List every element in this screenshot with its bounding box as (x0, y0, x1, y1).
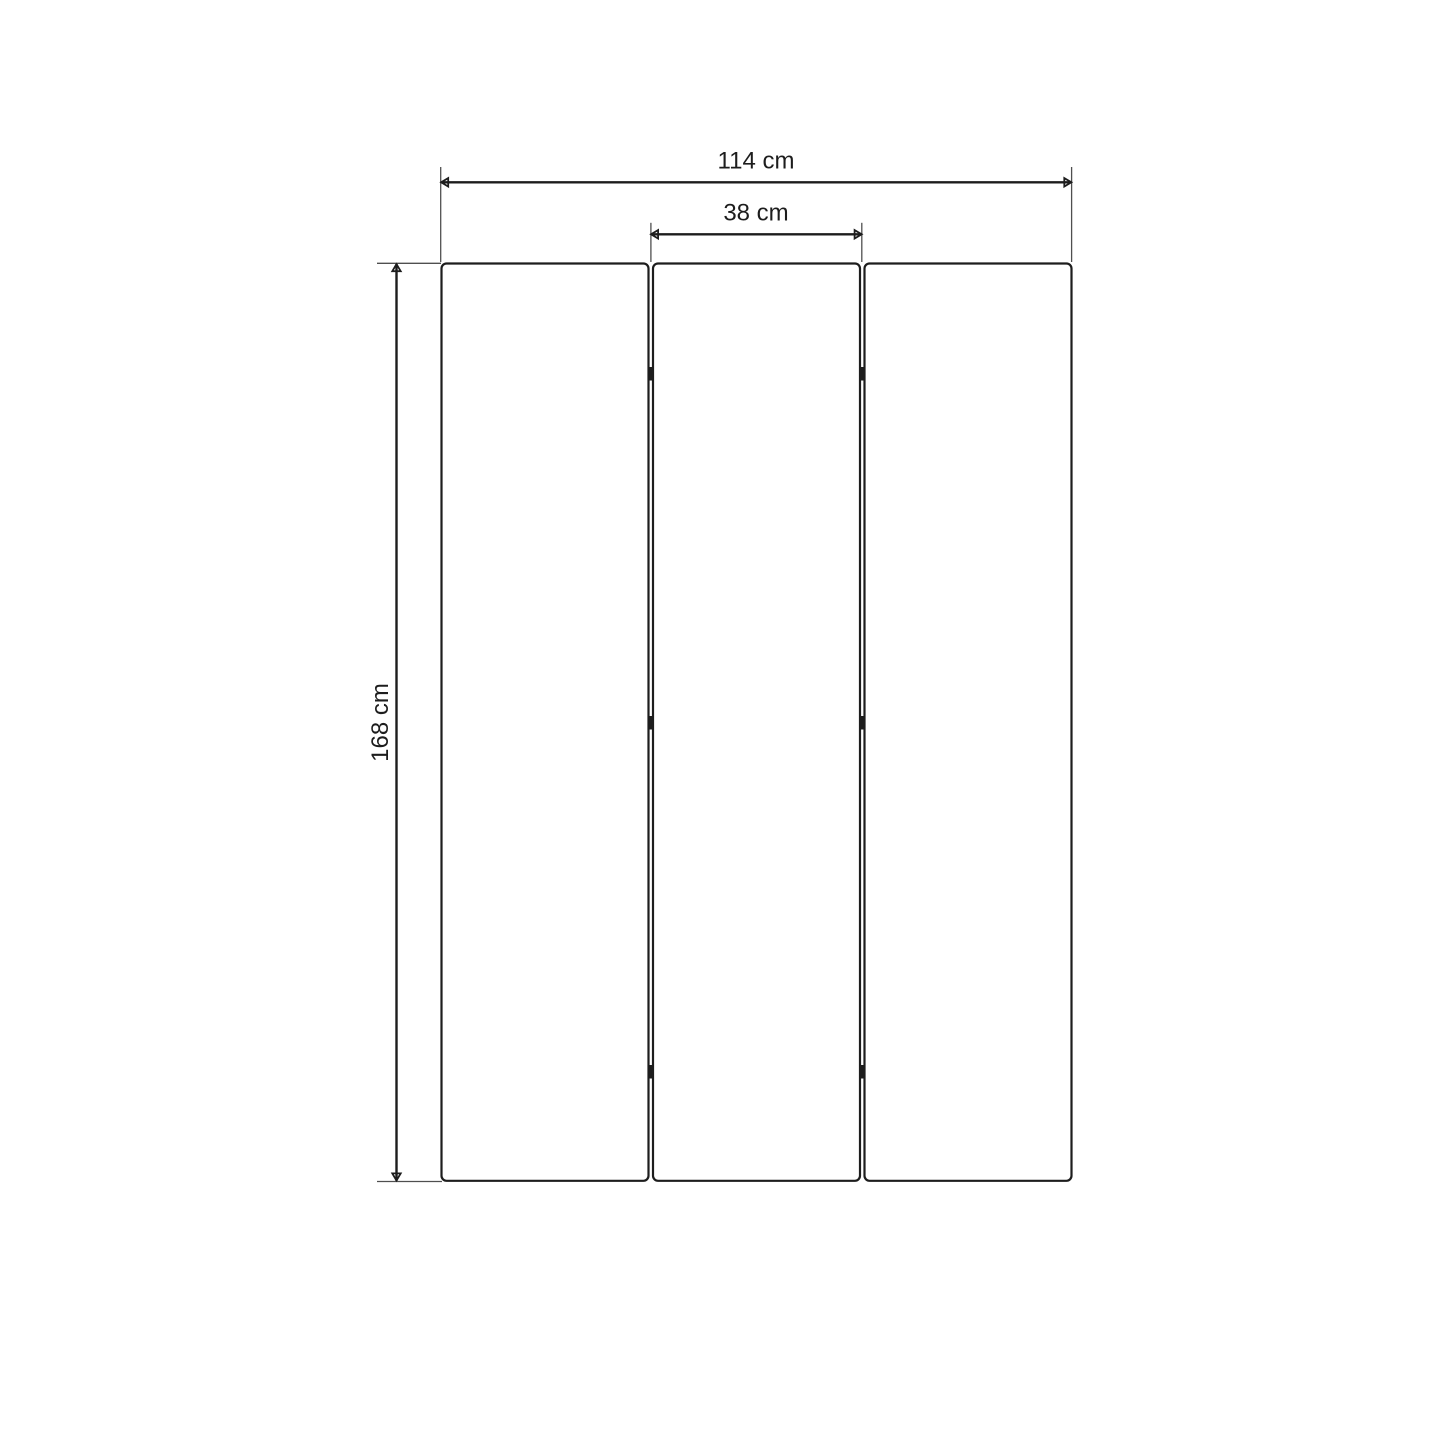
svg-text:38 cm: 38 cm (723, 200, 788, 227)
svg-text:114 cm: 114 cm (718, 148, 795, 175)
svg-text:168 cm: 168 cm (367, 683, 394, 762)
